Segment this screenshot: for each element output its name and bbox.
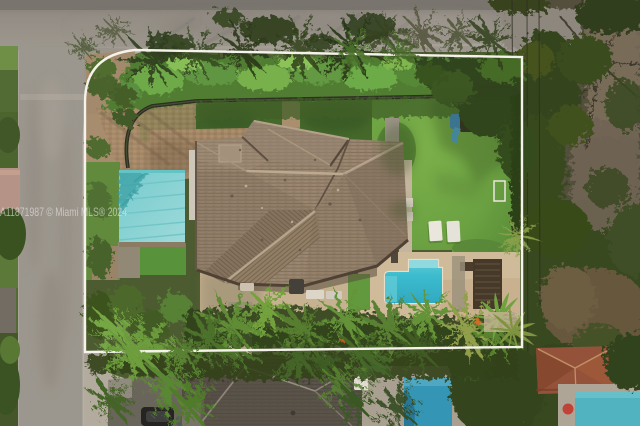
svg-text:A11871987 © Miami MLS® 2024: A11871987 © Miami MLS® 2024 (0, 205, 127, 219)
